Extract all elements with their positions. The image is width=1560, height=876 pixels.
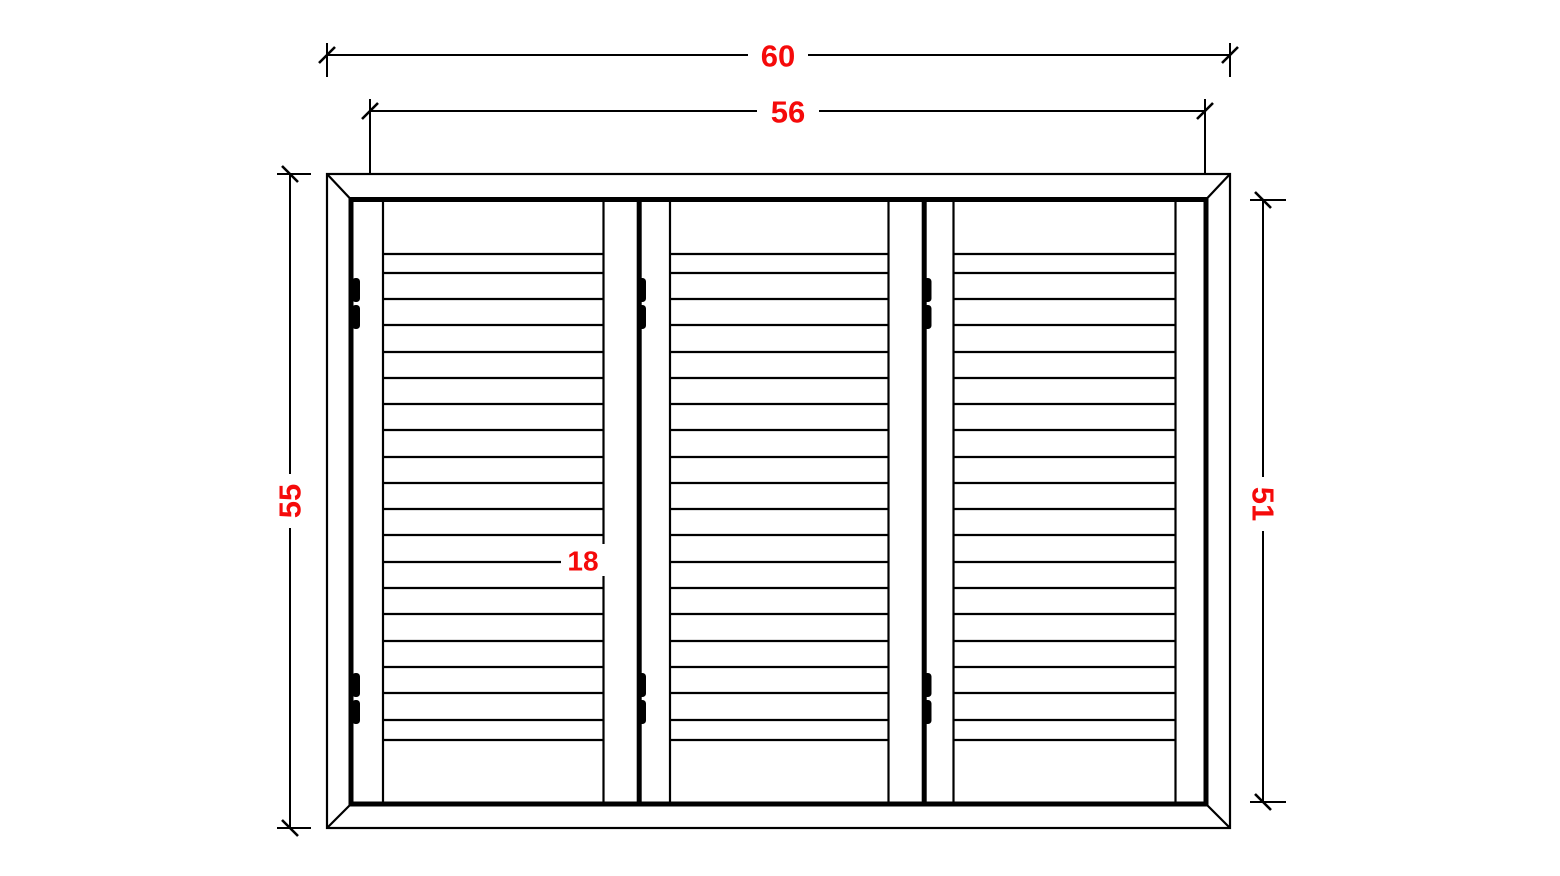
hinge-knuckle: [352, 278, 360, 302]
shutter-panel-3: [924, 202, 1176, 802]
dimension-overall-width: 60: [319, 38, 1238, 77]
frame-inner-edge: [351, 200, 1206, 805]
shutter-panel-1: [352, 202, 604, 802]
frame-miter-bottom-left: [327, 804, 351, 828]
frame-miter-top-left: [327, 174, 351, 200]
dimension-label-inner-height: 51: [1246, 487, 1281, 521]
dimension-label-overall-width: 60: [761, 39, 795, 74]
hinge-knuckle: [352, 305, 360, 329]
dimension-inner-height: 51: [1245, 192, 1286, 810]
frame-miter-bottom-right: [1206, 804, 1230, 828]
frame-miter-top-right: [1206, 174, 1230, 200]
panel-divider: [922, 202, 927, 802]
panel-divider: [637, 202, 642, 802]
dimension-label-inner-width: 56: [771, 95, 805, 130]
hinge-knuckle: [352, 700, 360, 724]
drawing-canvas: 60 56 55: [0, 0, 1560, 876]
dimension-label-overall-height: 55: [273, 484, 308, 518]
dimension-inner-width: 56: [362, 94, 1213, 174]
dimension-overall-height: 55: [272, 166, 311, 836]
dimension-panel-width: 18: [561, 544, 605, 577]
shutter-panel-2: [638, 202, 889, 802]
hinge-knuckle: [352, 673, 360, 697]
dimension-label-panel-width: 18: [567, 546, 598, 577]
shutter-panels: [352, 202, 1176, 802]
dimensions: 60 56 55: [272, 38, 1286, 836]
shutter-elevation-drawing: 60 56 55: [0, 0, 1560, 876]
